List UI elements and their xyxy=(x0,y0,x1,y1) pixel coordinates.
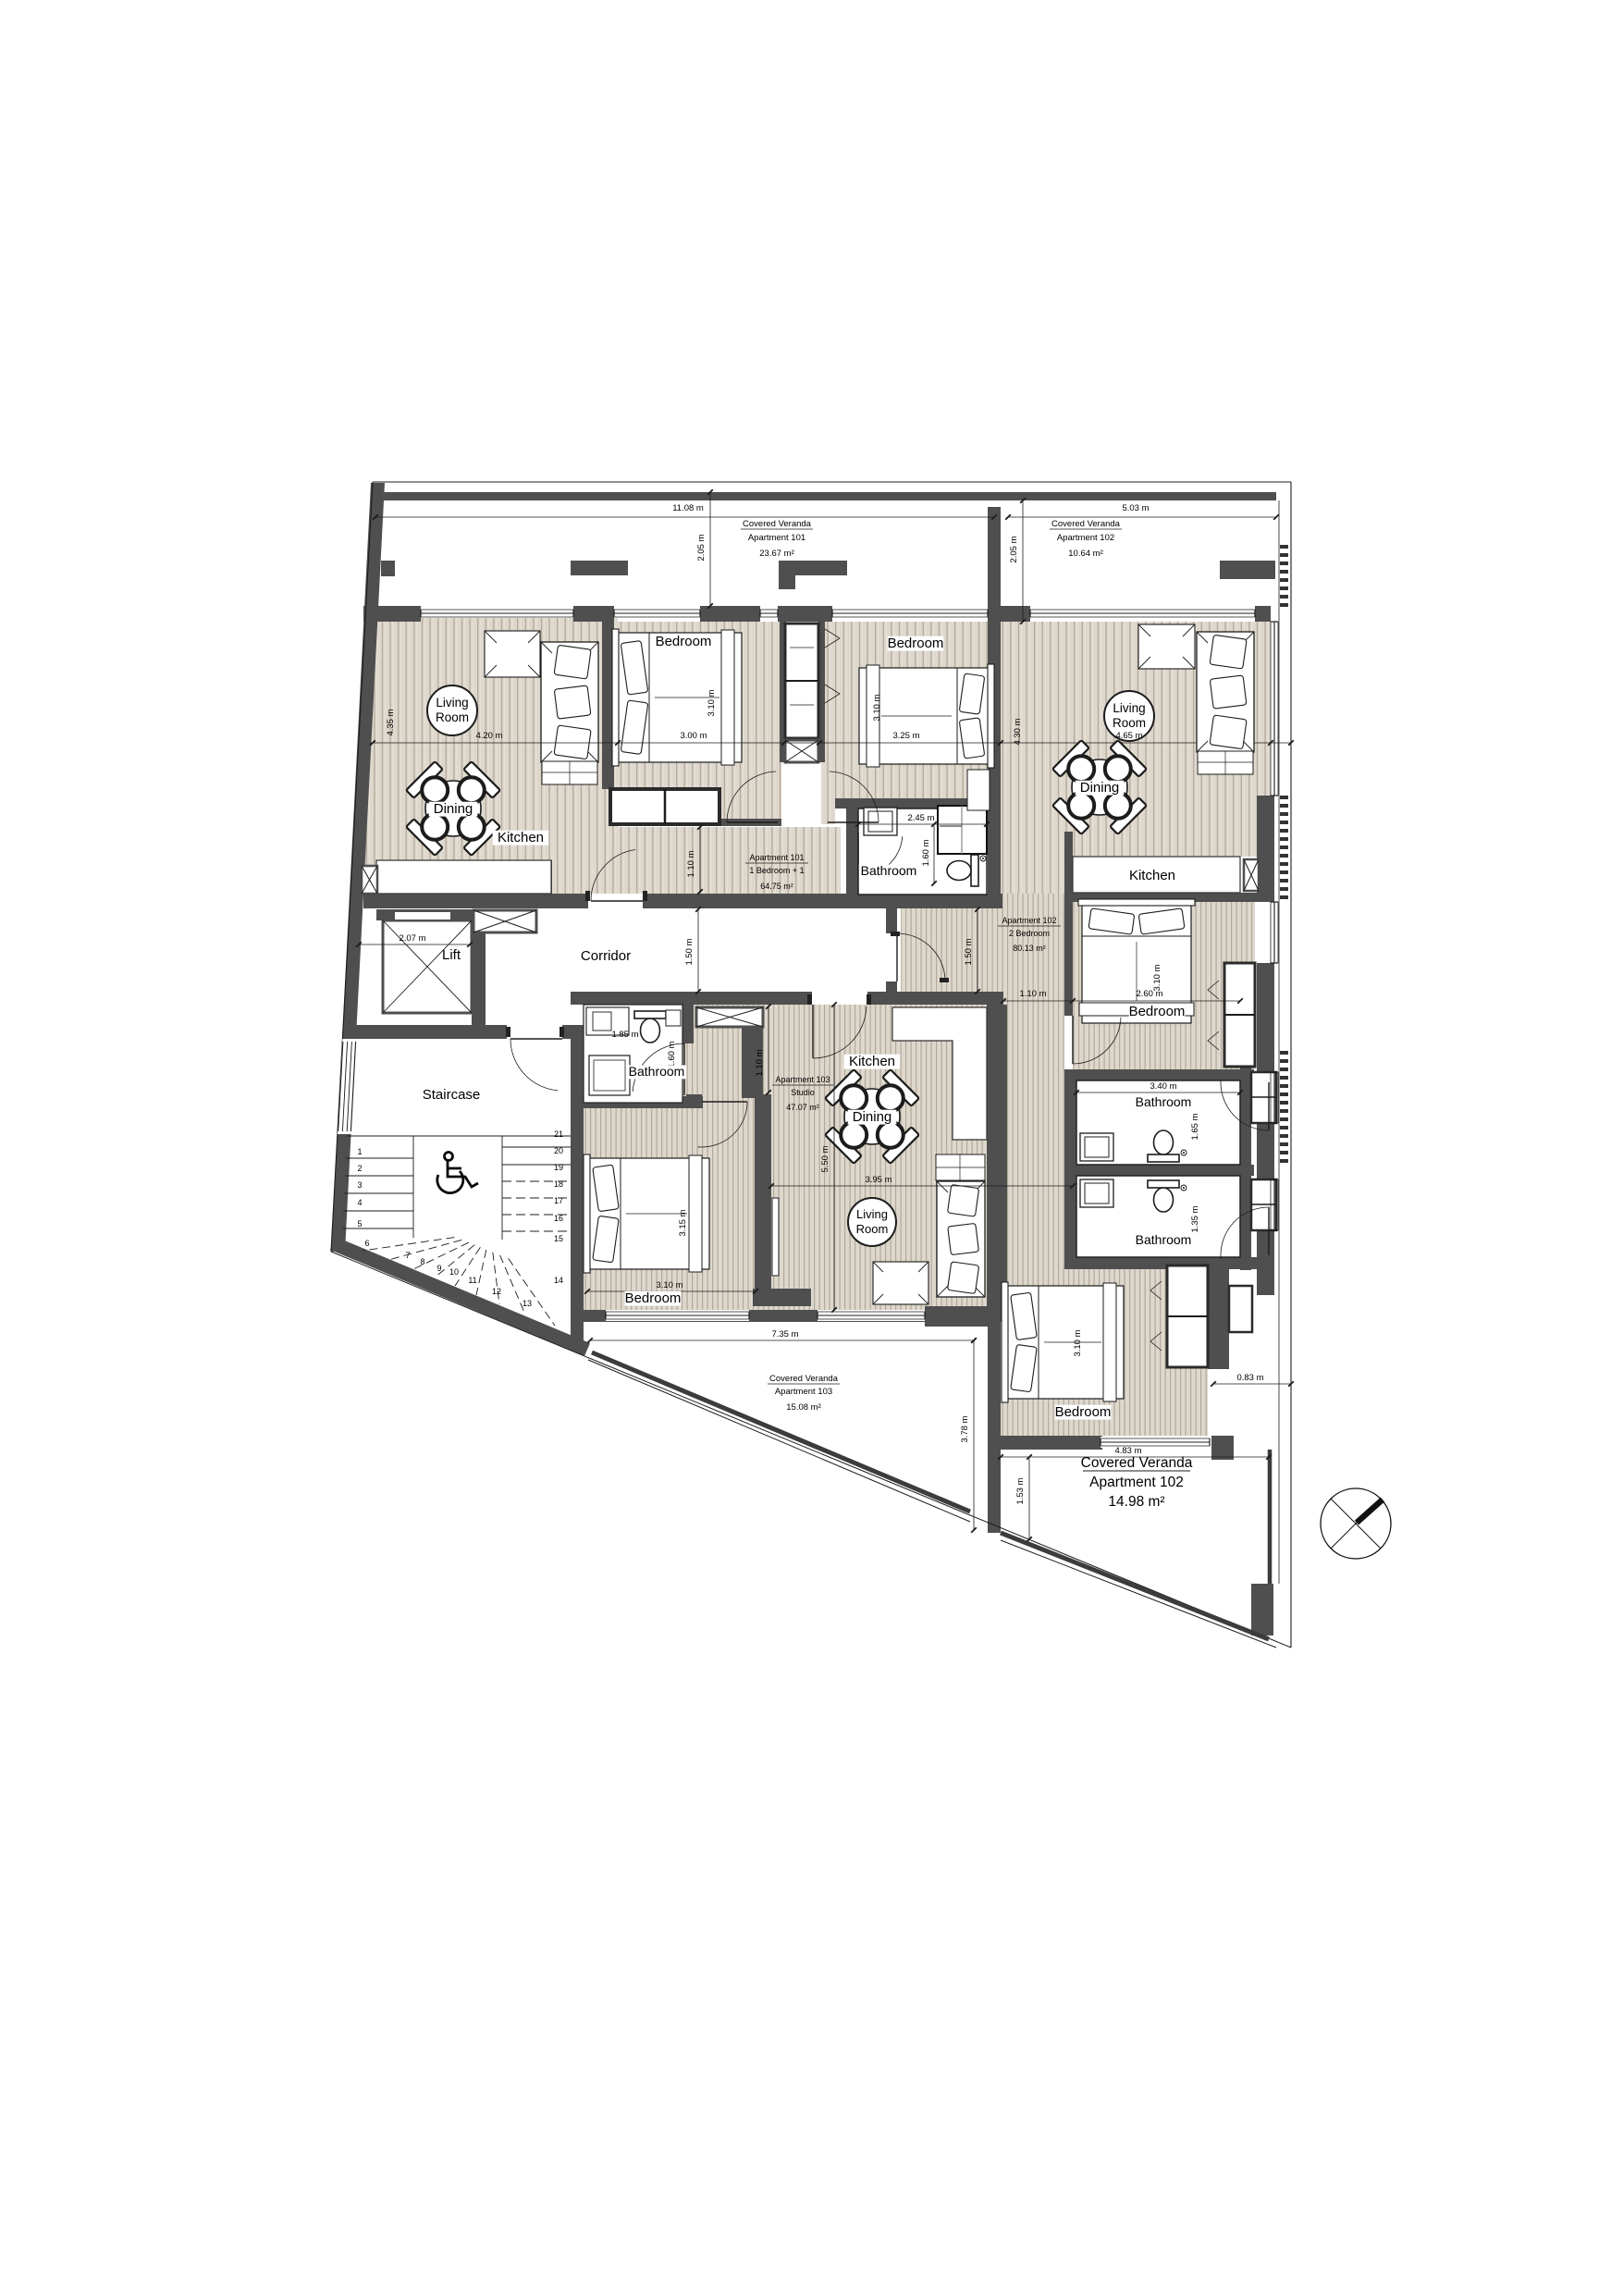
svg-text:19: 19 xyxy=(554,1163,563,1172)
svg-text:7: 7 xyxy=(405,1251,410,1260)
svg-text:3.78 m: 3.78 m xyxy=(960,1415,970,1442)
svg-text:2.07 m: 2.07 m xyxy=(399,933,425,944)
svg-text:15: 15 xyxy=(554,1234,563,1243)
svg-text:0.83 m: 0.83 m xyxy=(1236,1373,1263,1383)
svg-text:Staircase: Staircase xyxy=(423,1087,481,1103)
svg-text:Bathroom: Bathroom xyxy=(1136,1094,1192,1109)
svg-text:3.95 m: 3.95 m xyxy=(865,1175,891,1185)
svg-text:Living: Living xyxy=(1113,701,1145,715)
svg-text:3.10 m: 3.10 m xyxy=(1073,1329,1083,1356)
svg-text:47.07 m²: 47.07 m² xyxy=(786,1103,819,1112)
svg-text:21: 21 xyxy=(554,1129,563,1139)
svg-text:8: 8 xyxy=(420,1257,424,1266)
svg-text:4.30 m: 4.30 m xyxy=(1013,718,1023,745)
svg-text:1.85 m: 1.85 m xyxy=(611,1030,638,1040)
svg-text:Bedroom: Bedroom xyxy=(625,1290,682,1306)
svg-text:3.10 m: 3.10 m xyxy=(872,694,882,721)
svg-text:Kitchen: Kitchen xyxy=(849,1054,895,1069)
svg-text:1 Bedroom + 1: 1 Bedroom + 1 xyxy=(749,866,804,875)
svg-text:7.35 m: 7.35 m xyxy=(771,1329,798,1339)
svg-text:1.60 m: 1.60 m xyxy=(921,839,931,866)
svg-text:Bathroom: Bathroom xyxy=(629,1064,685,1079)
svg-text:Apartment 101: Apartment 101 xyxy=(749,853,804,862)
svg-text:5.03 m: 5.03 m xyxy=(1122,503,1149,513)
svg-text:18: 18 xyxy=(554,1179,563,1189)
svg-text:3.10 m: 3.10 m xyxy=(707,689,717,716)
svg-text:2.45 m: 2.45 m xyxy=(907,813,934,823)
svg-text:Bedroom: Bedroom xyxy=(656,634,712,649)
svg-text:Bedroom: Bedroom xyxy=(1055,1404,1112,1420)
svg-text:11.08 m: 11.08 m xyxy=(672,503,704,513)
svg-text:12: 12 xyxy=(492,1287,501,1296)
svg-text:Covered Veranda: Covered Veranda xyxy=(1051,519,1121,529)
svg-text:Lift: Lift xyxy=(442,947,461,963)
svg-text:16: 16 xyxy=(554,1214,563,1223)
svg-text:Dining: Dining xyxy=(853,1109,892,1125)
svg-text:4.65 m: 4.65 m xyxy=(1115,731,1142,741)
svg-text:Room: Room xyxy=(436,710,469,724)
svg-text:Room: Room xyxy=(1113,716,1146,730)
svg-text:15.08 m²: 15.08 m² xyxy=(786,1402,821,1413)
svg-text:9: 9 xyxy=(436,1264,441,1273)
svg-text:3: 3 xyxy=(357,1180,362,1190)
svg-text:10.64 m²: 10.64 m² xyxy=(1068,549,1103,559)
svg-text:80.13 m²: 80.13 m² xyxy=(1013,944,1046,953)
svg-text:64.75 m²: 64.75 m² xyxy=(760,882,793,891)
svg-text:Apartment 101: Apartment 101 xyxy=(748,533,805,543)
svg-text:Dining: Dining xyxy=(434,801,473,817)
svg-text:Apartment 102: Apartment 102 xyxy=(1002,916,1056,925)
svg-text:6: 6 xyxy=(364,1239,369,1248)
svg-text:1.50 m: 1.50 m xyxy=(684,938,695,965)
svg-text:3.15 m: 3.15 m xyxy=(678,1209,688,1236)
svg-text:14.98 m²: 14.98 m² xyxy=(1108,1494,1164,1510)
svg-text:Living: Living xyxy=(436,696,468,710)
svg-text:1: 1 xyxy=(357,1147,362,1156)
svg-text:2: 2 xyxy=(357,1164,362,1173)
svg-text:11: 11 xyxy=(468,1276,476,1285)
svg-text:Covered Veranda: Covered Veranda xyxy=(743,519,812,529)
svg-text:1.10 m: 1.10 m xyxy=(686,850,696,877)
svg-text:20: 20 xyxy=(554,1146,563,1155)
svg-text:1.50 m: 1.50 m xyxy=(964,938,974,965)
svg-text:2.05 m: 2.05 m xyxy=(1009,536,1019,562)
svg-text:Kitchen: Kitchen xyxy=(498,830,544,846)
svg-text:2 Bedroom: 2 Bedroom xyxy=(1009,929,1050,938)
svg-text:Apartment 102: Apartment 102 xyxy=(1057,533,1114,543)
svg-text:Apartment 103: Apartment 103 xyxy=(775,1387,832,1397)
svg-text:14: 14 xyxy=(554,1276,563,1285)
svg-text:4: 4 xyxy=(357,1198,362,1207)
svg-text:4.35 m: 4.35 m xyxy=(386,709,396,735)
svg-text:17: 17 xyxy=(554,1196,563,1205)
svg-text:Apartment 102: Apartment 102 xyxy=(1089,1475,1184,1490)
svg-text:Dining: Dining xyxy=(1080,780,1120,796)
svg-text:13: 13 xyxy=(523,1299,532,1308)
svg-text:3.10 m: 3.10 m xyxy=(656,1280,682,1290)
svg-text:5: 5 xyxy=(357,1219,362,1228)
svg-text:10: 10 xyxy=(449,1267,459,1277)
svg-text:1.65 m: 1.65 m xyxy=(1190,1113,1200,1140)
svg-text:Room: Room xyxy=(856,1222,889,1236)
svg-text:5.50 m: 5.50 m xyxy=(820,1145,830,1172)
svg-text:4.20 m: 4.20 m xyxy=(475,731,502,741)
svg-text:3.10 m: 3.10 m xyxy=(1152,964,1162,991)
svg-text:23.67 m²: 23.67 m² xyxy=(759,549,794,559)
svg-text:Bathroom: Bathroom xyxy=(1136,1232,1192,1247)
svg-text:Kitchen: Kitchen xyxy=(1129,868,1175,883)
svg-text:2.05 m: 2.05 m xyxy=(696,534,707,561)
svg-text:Bedroom: Bedroom xyxy=(888,636,944,651)
svg-text:Apartment 103: Apartment 103 xyxy=(775,1075,830,1084)
svg-text:1.53 m: 1.53 m xyxy=(1015,1477,1026,1504)
svg-text:Covered Veranda: Covered Veranda xyxy=(1081,1455,1193,1471)
svg-text:1.10 m: 1.10 m xyxy=(1019,989,1046,999)
svg-text:3.40 m: 3.40 m xyxy=(1150,1081,1176,1092)
svg-text:Bedroom: Bedroom xyxy=(1129,1004,1186,1019)
svg-text:3.00 m: 3.00 m xyxy=(680,731,707,741)
svg-text:Corridor: Corridor xyxy=(581,948,631,964)
svg-text:Bathroom: Bathroom xyxy=(861,863,917,878)
svg-text:1.35 m: 1.35 m xyxy=(1190,1205,1200,1232)
svg-text:Living: Living xyxy=(856,1207,888,1221)
svg-text:1.10 m: 1.10 m xyxy=(755,1049,765,1076)
svg-text:Studio: Studio xyxy=(791,1088,815,1097)
svg-text:Covered Veranda: Covered Veranda xyxy=(769,1374,839,1384)
svg-text:3.25 m: 3.25 m xyxy=(892,731,919,741)
